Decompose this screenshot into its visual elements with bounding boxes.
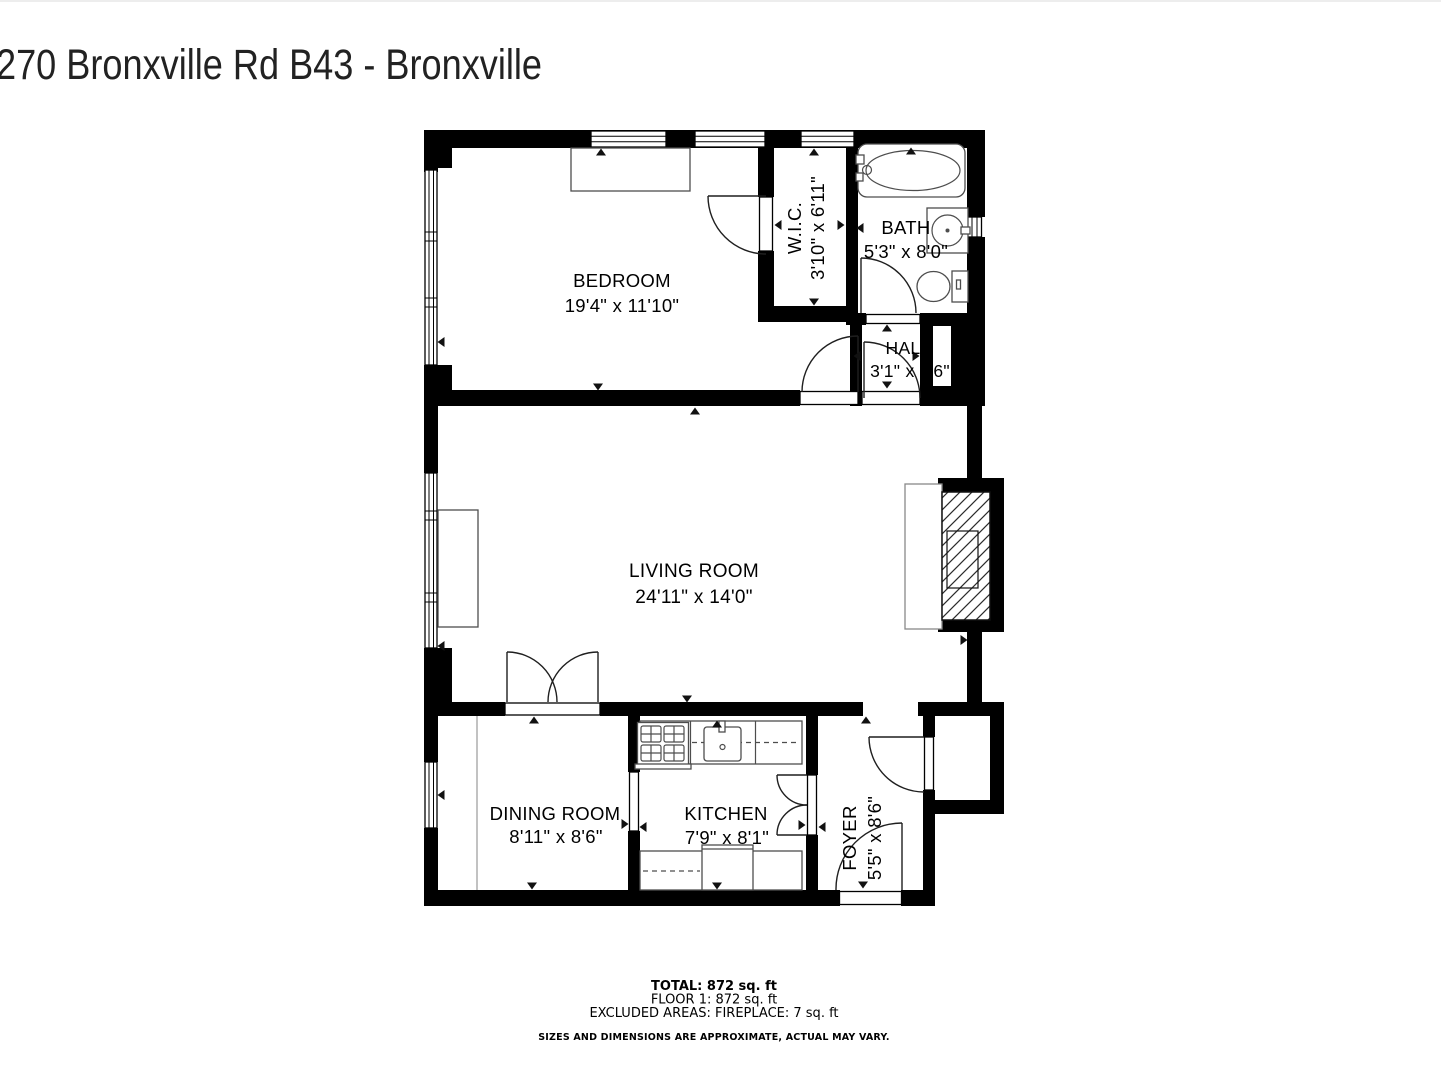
foyer-dims: 5'5" x 8'6" (864, 796, 885, 880)
wic-dims: 3'10" x 6'11" (807, 176, 828, 280)
bedroom-label: BEDROOM (573, 270, 671, 291)
wic-door (708, 196, 766, 254)
dining-room-label: DINING ROOM (490, 803, 621, 824)
room-labels: BEDROOM 19'4" x 11'10" W.I.C. 3'10" x 6'… (490, 176, 950, 880)
page-title: 270 Bronxville Rd B43 - Bronxville (0, 42, 542, 89)
floor-plan-page: 270 Bronxville Rd B43 - Bronxville BEDRO… (0, 0, 1441, 1080)
stove (635, 723, 691, 770)
fireplace-hearth (905, 484, 942, 629)
bedroom-dresser (571, 148, 690, 191)
dining-room-dims: 8'11" x 8'6" (509, 826, 602, 847)
living-room-dims: 24'11" x 14'0" (635, 587, 753, 608)
hall-label: HALL (886, 338, 931, 358)
french-doors (507, 652, 598, 702)
bath-label: BATH (881, 217, 930, 238)
summary: TOTAL: 872 sq. ft FLOOR 1: 872 sq. ft EX… (538, 979, 889, 1043)
dishwasher (702, 845, 753, 890)
furniture (438, 148, 690, 627)
wic-label: W.I.C. (784, 202, 805, 254)
foyer-closet-door (869, 737, 924, 792)
fireplace-firebox (942, 492, 990, 620)
foyer-label: FOYER (839, 805, 860, 870)
top-border-line (0, 0, 1441, 2)
excluded-area-text: EXCLUDED AREAS: FIREPLACE: 7 sq. ft (589, 1006, 838, 1021)
bedroom-door (802, 336, 858, 392)
living-room-label: LIVING ROOM (629, 561, 759, 582)
bath-dims: 5'3" x 8'0" (864, 241, 948, 262)
living-sideboard (438, 510, 478, 627)
bath-door (861, 258, 916, 313)
kitchen-sink (704, 721, 741, 761)
fireplace (905, 484, 990, 629)
toilet (917, 271, 968, 302)
hall-dims: 3'1" x 3'6" (870, 361, 950, 381)
kitchen-dims: 7'9" x 8'1" (685, 827, 769, 848)
bedroom-dims: 19'4" x 11'10" (565, 295, 680, 316)
kitchen-label: KITCHEN (684, 803, 767, 824)
floor-plan-svg: 270 Bronxville Rd B43 - Bronxville BEDRO… (0, 0, 1441, 1080)
disclaimer-text: SIZES AND DIMENSIONS ARE APPROXIMATE, AC… (538, 1032, 889, 1043)
